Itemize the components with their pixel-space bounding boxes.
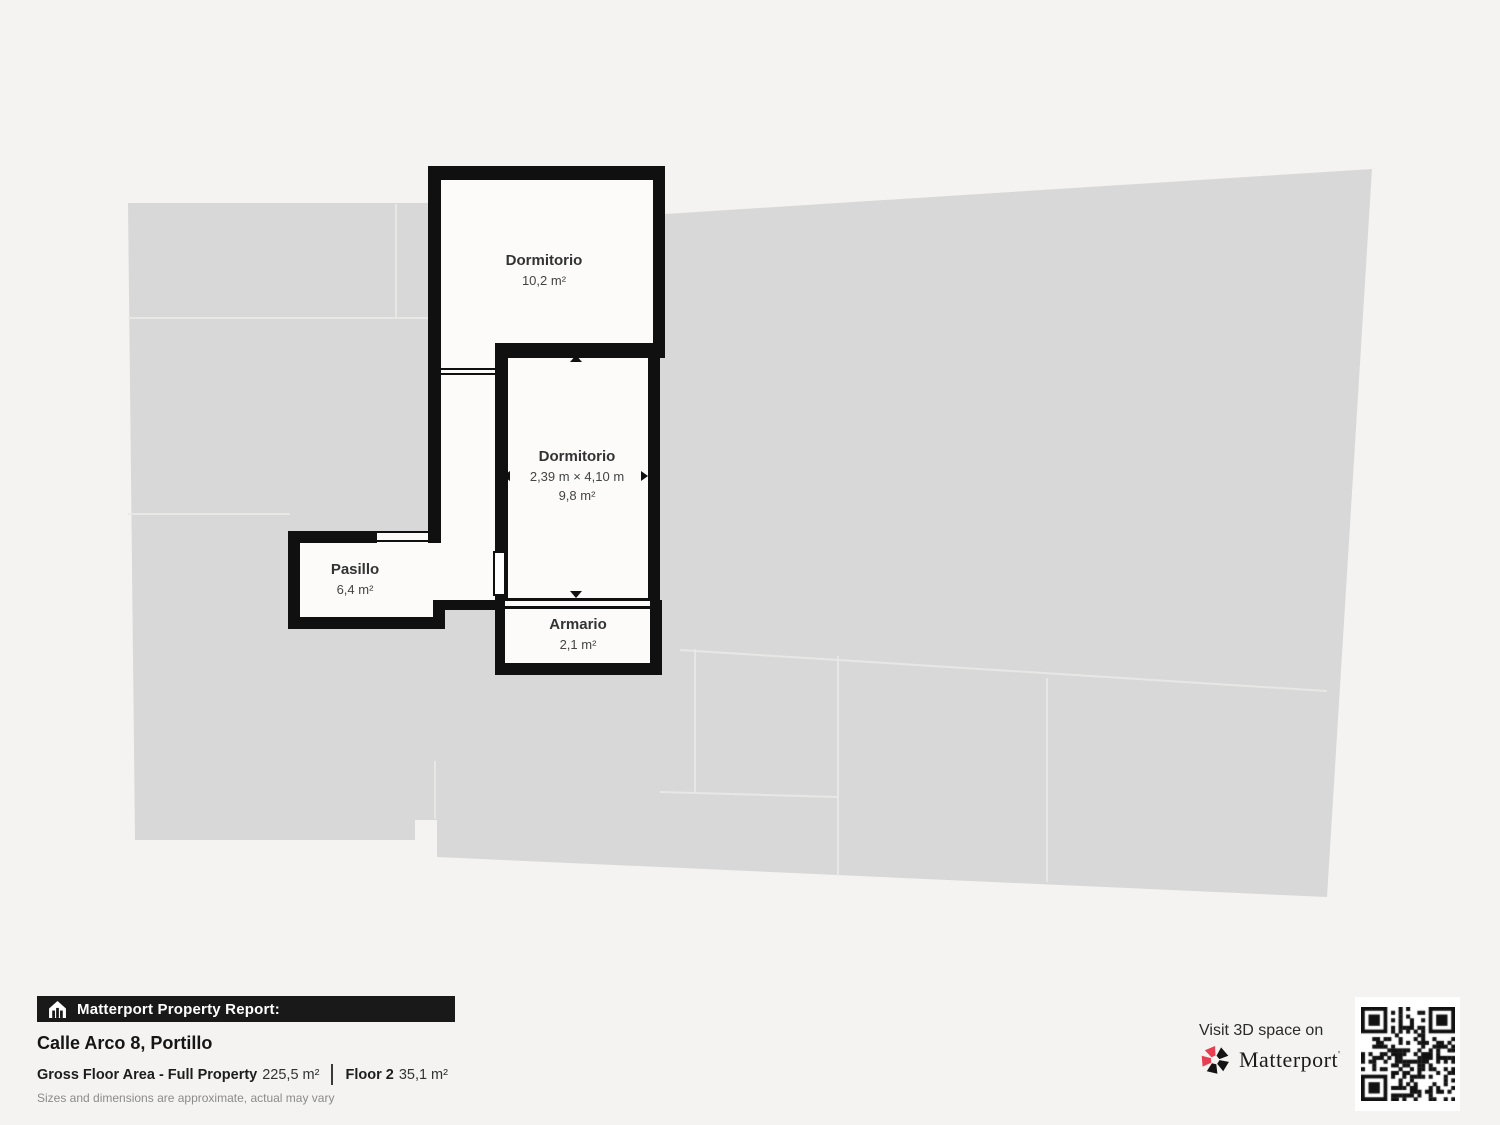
passage-line: [505, 606, 650, 609]
qr-card: [1355, 997, 1460, 1111]
wall: [288, 531, 377, 543]
dimension-arrow-down-icon: [570, 591, 582, 598]
disclaimer-text: Sizes and dimensions are approximate, ac…: [37, 1091, 334, 1105]
matterport-pinwheel-icon: [1199, 1044, 1231, 1076]
room-pasillo-fill: [300, 543, 433, 617]
wall: [288, 531, 300, 629]
wall: [288, 617, 445, 629]
floor-label: Floor 2: [345, 1067, 393, 1083]
room-area-dormitorio-2: 9,8 m²: [477, 488, 677, 504]
wall: [428, 531, 441, 543]
gross-area-value: 225,5 m²: [262, 1067, 319, 1083]
room-area-pasillo: 6,4 m²: [270, 582, 440, 598]
qr-code: [1361, 1007, 1455, 1101]
floor-area-value: 35,1 m²: [399, 1067, 448, 1083]
house-icon: [48, 1000, 67, 1019]
matterport-wordmark: Matterport': [1239, 1047, 1340, 1073]
property-address: Calle Arco 8, Portillo: [37, 1033, 212, 1054]
stats-divider: [331, 1064, 333, 1085]
wall: [495, 663, 662, 675]
room-label-pasillo: Pasillo: [270, 561, 440, 579]
room-label-dormitorio-1: Dormitorio: [444, 252, 644, 270]
room-area-dormitorio-1: 10,2 m²: [444, 273, 644, 289]
passage-line: [441, 373, 495, 375]
room-area-armario: 2,1 m²: [478, 637, 678, 653]
banner-label: Matterport Property Report:: [77, 1001, 280, 1018]
dimension-arrow-up-icon: [570, 355, 582, 362]
room-label-dormitorio-2: Dormitorio: [477, 448, 677, 466]
passage-line: [505, 598, 650, 601]
trademark-tick: ': [1338, 1050, 1340, 1061]
area-stats: Gross Floor Area - Full Property 225,5 m…: [37, 1064, 448, 1085]
room-dimensions-dormitorio-2: 2,39 m × 4,10 m: [477, 469, 677, 485]
matterport-logo: Matterport': [1199, 1044, 1340, 1076]
room-pasillo-fill-right: [433, 543, 495, 600]
wall: [653, 166, 665, 356]
passage-line: [441, 368, 495, 370]
gross-area-label: Gross Floor Area - Full Property: [37, 1067, 257, 1083]
report-banner: Matterport Property Report:: [37, 996, 455, 1022]
wall: [428, 166, 441, 543]
visit-3d-label: Visit 3D space on: [1199, 1022, 1323, 1040]
passage-line: [377, 531, 428, 533]
wall: [428, 166, 665, 180]
passage-line: [377, 540, 428, 542]
door-leaf: [493, 551, 506, 596]
room-label-armario: Armario: [478, 616, 678, 634]
floorplan: Dormitorio 10,2 m² Dormitorio 2,39 m × 4…: [0, 0, 1500, 1125]
wall: [433, 600, 497, 610]
